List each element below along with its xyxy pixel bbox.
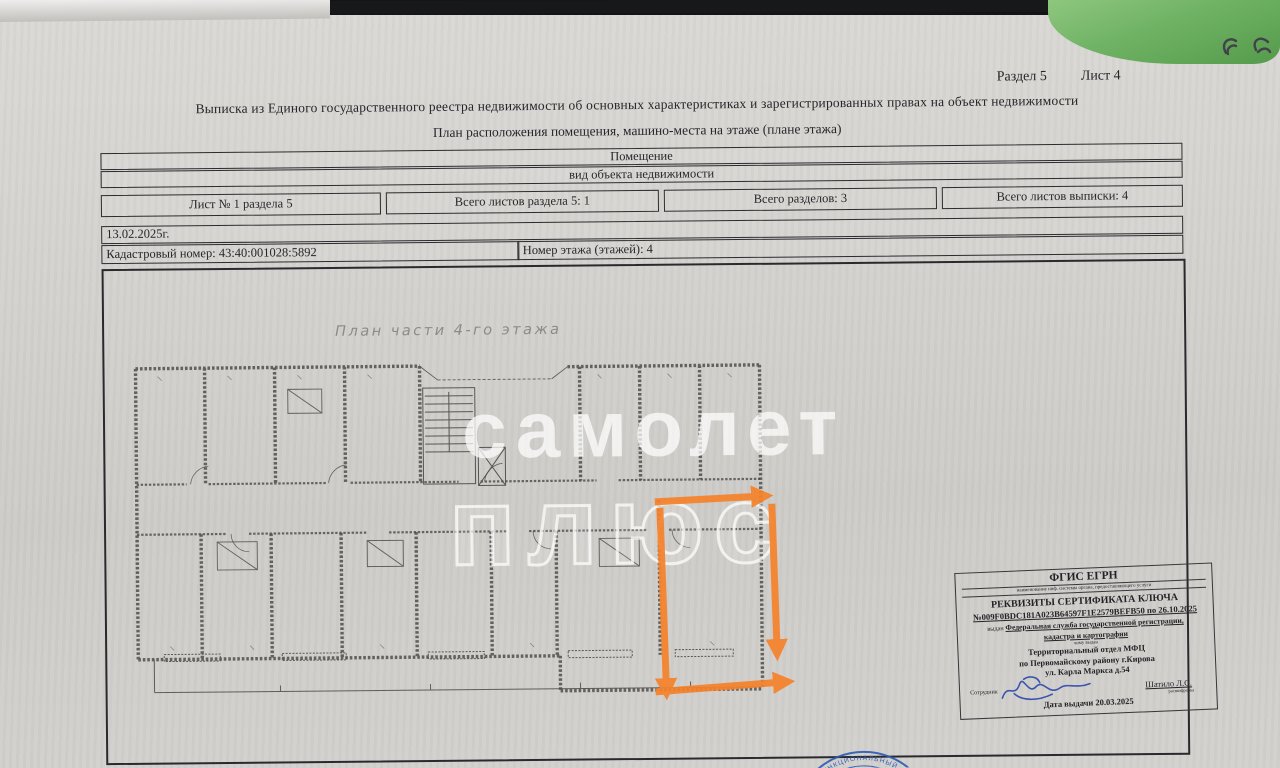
- signature-caption: расшифровка: [1168, 687, 1194, 693]
- plan-caption: План части 4-го этажа: [335, 322, 562, 340]
- egrn-extract-document: Раздел 5 Лист 4 Выписка из Единого госуд…: [0, 0, 1280, 768]
- issued-by-prefix: выдан: [987, 625, 1004, 633]
- section-sheet-header: Раздел 5 Лист 4: [997, 68, 1177, 86]
- cadastral-number: Кадастровый номер: 43:40:001028:5892: [101, 241, 519, 264]
- meta-total-extract-sheets: Всего листов выписки: 4: [942, 185, 1183, 209]
- round-official-stamp: МНОГОФУНКЦИОНАЛЬНЫЙ: [778, 745, 948, 768]
- svg-text:МНОГОФУНКЦИОНАЛЬНЫЙ: МНОГОФУНКЦИОНАЛЬНЫЙ: [799, 755, 900, 768]
- document-subtitle: План расположения помещения, машино-мест…: [117, 118, 1157, 144]
- sheet-label: Лист 4: [1081, 68, 1121, 84]
- sheet-meta-row: Лист № 1 раздела 5 Всего листов раздела …: [101, 185, 1183, 217]
- meta-total-sections: Всего разделов: 3: [664, 187, 937, 212]
- round-stamp-text: МНОГОФУНКЦИОНАЛЬНЫЙ: [799, 755, 900, 768]
- unit-highlight-arrows: [641, 476, 818, 718]
- certificate-stamp: ФГИС ЕГРН наименование инф. системы орга…: [954, 562, 1218, 719]
- meta-sheet-number: Лист № 1 раздела 5: [101, 192, 381, 217]
- photo-of-document: Раздел 5 Лист 4 Выписка из Единого госуд…: [0, 0, 1280, 768]
- handwritten-signature: [993, 669, 1124, 706]
- meta-total-section-sheets: Всего листов раздела 5: 1: [386, 190, 659, 215]
- document-title: Выписка из Единого государственного реес…: [117, 92, 1157, 118]
- section-label: Раздел 5: [997, 69, 1047, 85]
